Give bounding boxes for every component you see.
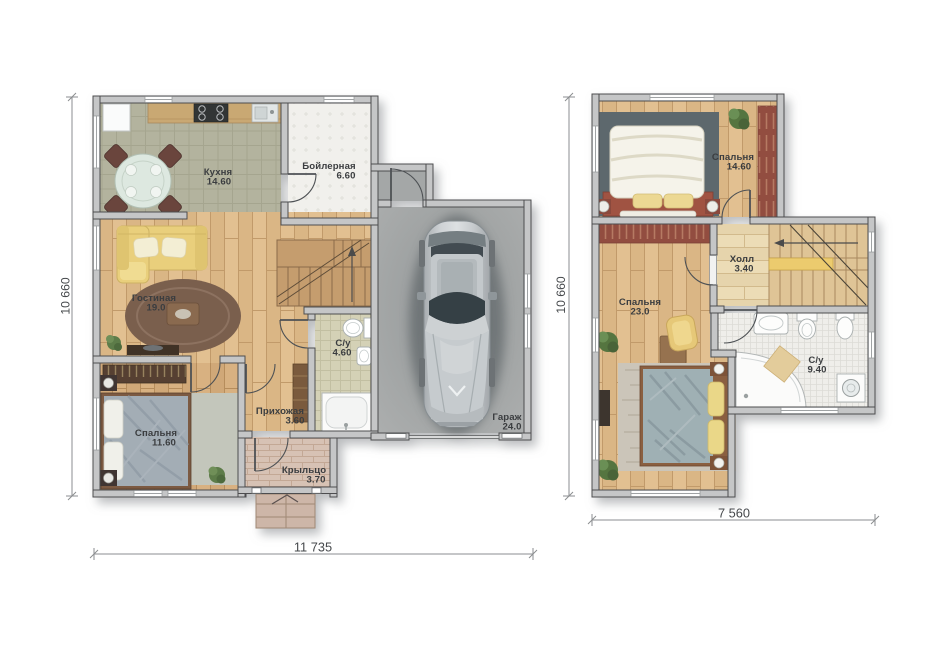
svg-text:10 660: 10 660 xyxy=(554,276,568,313)
svg-text:11 735: 11 735 xyxy=(294,540,332,555)
svg-text:4.60: 4.60 xyxy=(332,348,351,359)
svg-text:14.60: 14.60 xyxy=(727,162,752,173)
svg-text:19.0: 19.0 xyxy=(146,303,165,314)
svg-text:9.40: 9.40 xyxy=(807,365,826,376)
svg-text:11.60: 11.60 xyxy=(152,438,176,449)
svg-text:14.60: 14.60 xyxy=(207,177,232,188)
svg-text:6.60: 6.60 xyxy=(336,171,355,182)
svg-text:24.0: 24.0 xyxy=(502,422,521,433)
svg-text:3.70: 3.70 xyxy=(306,475,325,486)
svg-text:7 560: 7 560 xyxy=(718,506,750,521)
svg-text:3.60: 3.60 xyxy=(285,416,304,427)
svg-text:23.0: 23.0 xyxy=(630,307,649,318)
svg-text:10 660: 10 660 xyxy=(59,277,73,314)
svg-text:3.40: 3.40 xyxy=(734,264,753,275)
